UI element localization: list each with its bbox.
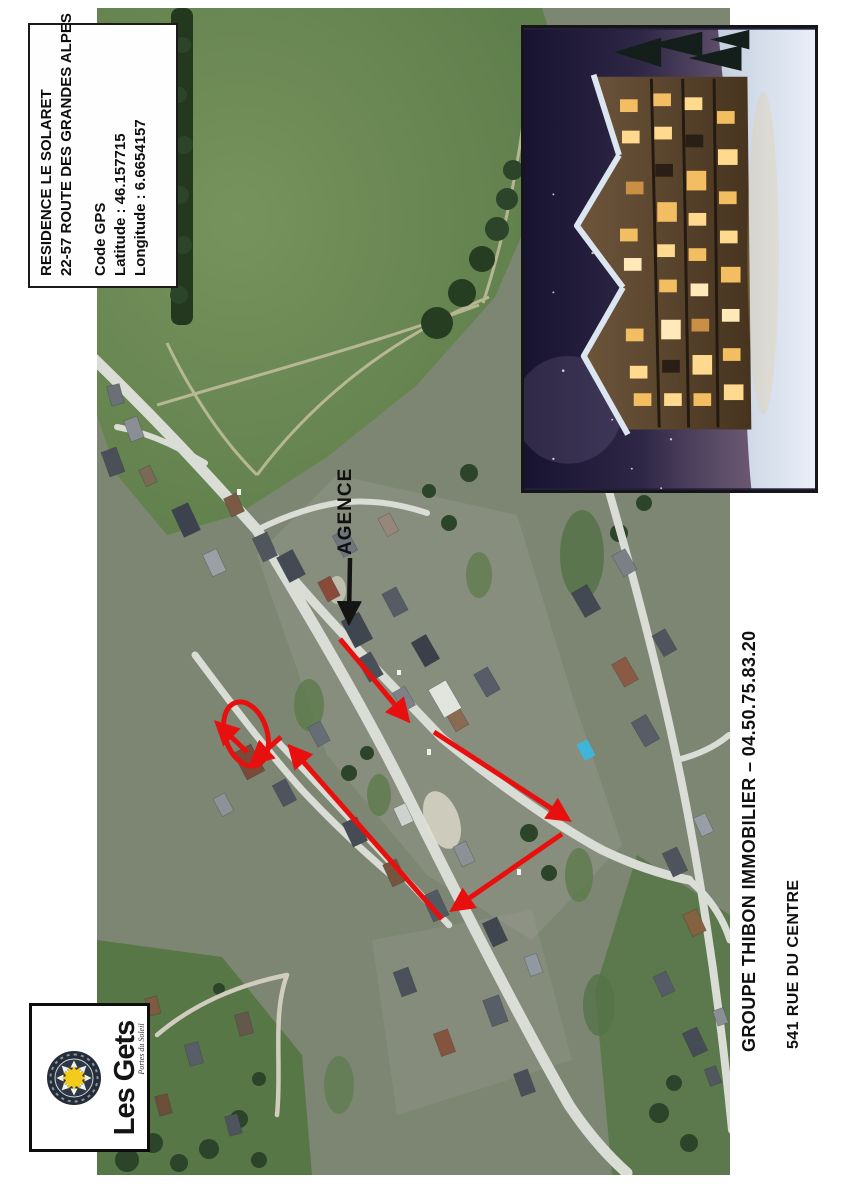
agence-label: AGENCE: [335, 468, 357, 555]
residence-address: 22-57 ROUTE DES GRANDES ALPES: [57, 25, 77, 276]
les-gets-logo-art: Les Gets Portes du Soleil: [32, 1006, 147, 1149]
agency-contact-line: GROUPE THIBON IMMOBILIER – 04.50.75.83.2…: [739, 630, 760, 1052]
agence-arrow: [349, 558, 350, 619]
residence-info-box: RESIDENCE LE SOLARET 22-57 ROUTE DES GRA…: [28, 23, 178, 288]
gps-title: Code GPS: [91, 25, 111, 276]
agency-address-line: 541 RUE DU CENTRE: [785, 879, 803, 1049]
gps-latitude: Latitude : 46.157715: [111, 25, 131, 276]
chalet-render-inset: [521, 25, 818, 493]
les-gets-emblem: [47, 1051, 101, 1105]
les-gets-tagline: Portes du Soleil: [137, 1023, 146, 1076]
chalet-render-illustration: [524, 28, 815, 490]
gps-longitude: Longitude : 6.6654157: [131, 25, 151, 276]
landscape-document: AGENCE RESIDENCE LE SOLARET 22-57 ROUTE …: [0, 0, 848, 1200]
scanned-location-sheet: AGENCE RESIDENCE LE SOLARET 22-57 ROUTE …: [0, 0, 848, 1200]
les-gets-logo: Les Gets Portes du Soleil: [29, 1003, 150, 1152]
residence-name: RESIDENCE LE SOLARET: [37, 25, 57, 276]
window-glow: [747, 91, 778, 414]
